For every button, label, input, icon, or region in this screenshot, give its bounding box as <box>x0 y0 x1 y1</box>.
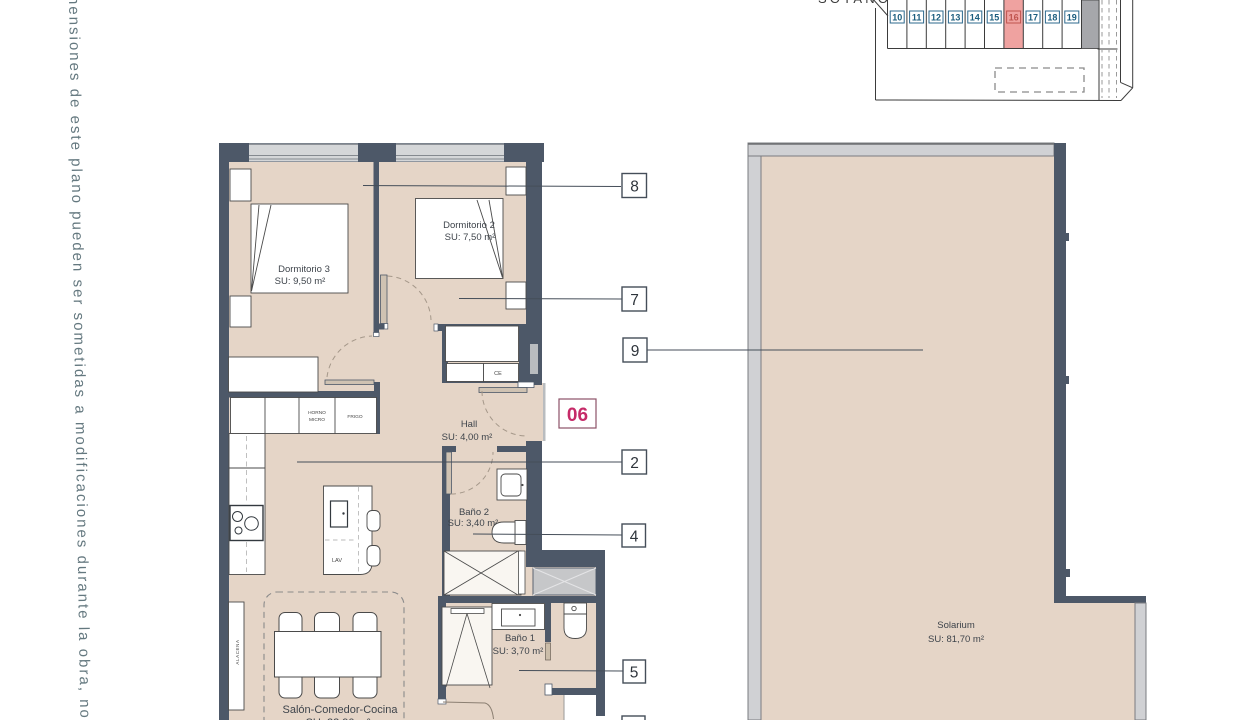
svg-text:8: 8 <box>630 179 639 196</box>
svg-text:SU: 3,40 m²: SU: 3,40 m² <box>448 518 499 529</box>
svg-text:11: 11 <box>912 13 922 23</box>
svg-text:06: 06 <box>567 405 588 426</box>
svg-text:FRIGO: FRIGO <box>347 414 362 420</box>
svg-text:CE: CE <box>494 371 502 377</box>
svg-text:Hall: Hall <box>461 419 477 430</box>
svg-text:SÓTANO: SÓTANO <box>818 0 891 6</box>
svg-text:12: 12 <box>931 13 941 23</box>
svg-text:Solarium: Solarium <box>937 620 975 631</box>
svg-text:Dormitorio 3: Dormitorio 3 <box>278 264 330 275</box>
svg-text:SU: 3,70 m²: SU: 3,70 m² <box>493 646 544 657</box>
svg-text:Baño 2: Baño 2 <box>459 507 489 518</box>
svg-text:MICRO: MICRO <box>309 417 325 423</box>
svg-text:19: 19 <box>1067 13 1077 23</box>
svg-text:16: 16 <box>1009 13 1019 23</box>
svg-text:LAV: LAV <box>332 558 342 564</box>
svg-text:ALACENA: ALACENA <box>235 639 240 664</box>
svg-text:Salón-Comedor-Cocina: Salón-Comedor-Cocina <box>283 704 399 716</box>
svg-text:15: 15 <box>989 13 999 23</box>
svg-text:13: 13 <box>950 13 960 23</box>
svg-text:5: 5 <box>630 665 639 682</box>
svg-text:nensiones de este plano pueden: nensiones de este plano pueden ser somet… <box>65 0 93 718</box>
svg-text:9: 9 <box>631 343 640 360</box>
svg-text:SU: 4,00 m²: SU: 4,00 m² <box>442 432 493 443</box>
svg-text:17: 17 <box>1028 13 1038 23</box>
svg-text:2: 2 <box>630 455 639 472</box>
svg-text:7: 7 <box>630 292 639 309</box>
svg-text:SU: 7,50 m²: SU: 7,50 m² <box>445 232 496 243</box>
svg-text:HORNO: HORNO <box>308 410 326 416</box>
svg-text:SU: 81,70 m²: SU: 81,70 m² <box>928 634 984 645</box>
svg-text:Baño 1: Baño 1 <box>505 633 535 644</box>
svg-text:10: 10 <box>892 13 902 23</box>
svg-text:SU: 9,50 m²: SU: 9,50 m² <box>275 276 326 287</box>
svg-text:14: 14 <box>970 13 980 23</box>
svg-text:18: 18 <box>1047 13 1057 23</box>
svg-text:4: 4 <box>630 529 639 546</box>
svg-text:Dormitorio 2: Dormitorio 2 <box>443 220 495 231</box>
